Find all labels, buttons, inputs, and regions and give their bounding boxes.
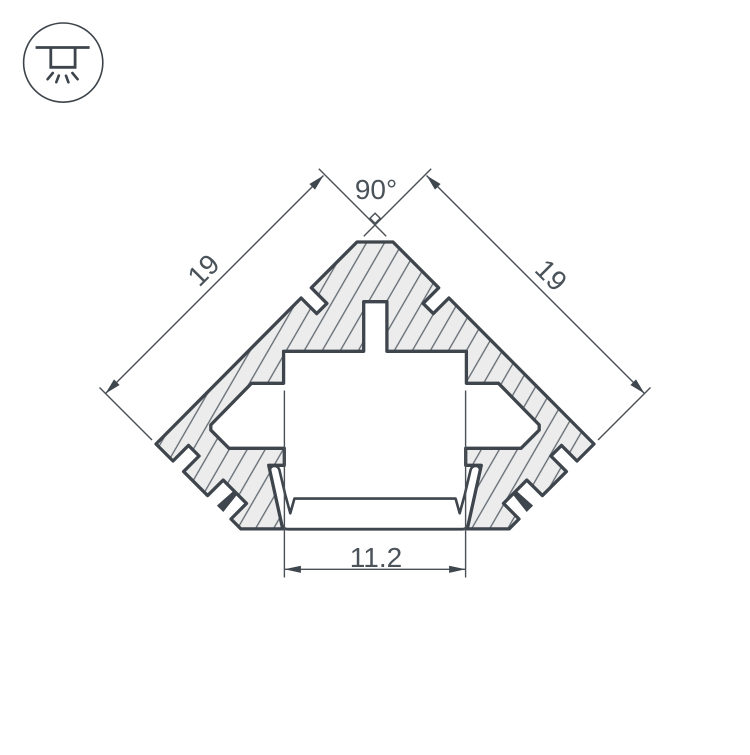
svg-text:90°: 90°: [355, 174, 397, 205]
svg-text:19: 19: [529, 253, 573, 297]
svg-text:19: 19: [182, 248, 226, 292]
svg-text:11.2: 11.2: [350, 542, 402, 573]
